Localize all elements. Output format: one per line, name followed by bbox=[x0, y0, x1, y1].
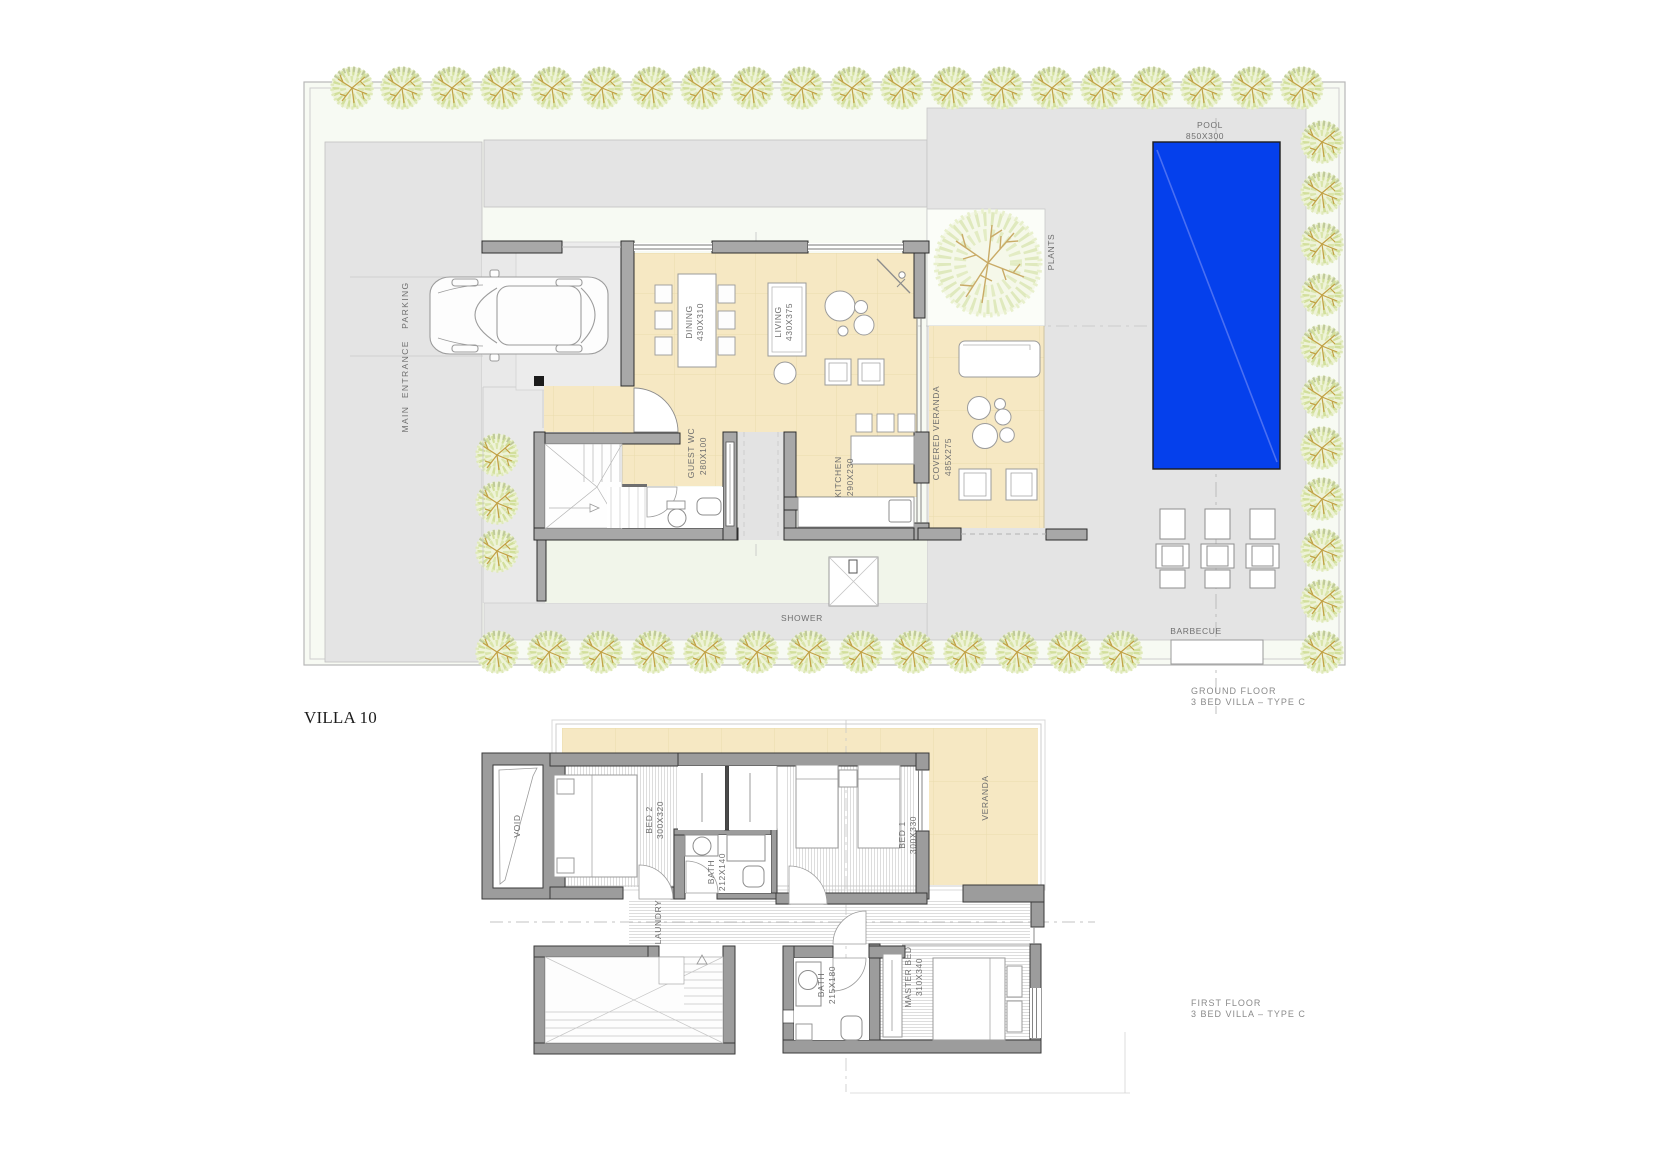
svg-text:GUEST WC: GUEST WC bbox=[686, 428, 696, 478]
svg-text:212X140: 212X140 bbox=[717, 853, 727, 891]
svg-text:430X375: 430X375 bbox=[784, 303, 794, 341]
svg-text:LAUNDRY: LAUNDRY bbox=[653, 900, 663, 945]
svg-text:PLANTS: PLANTS bbox=[1046, 234, 1056, 271]
svg-text:VERANDA: VERANDA bbox=[980, 775, 990, 820]
svg-text:VILLA 10: VILLA 10 bbox=[304, 708, 377, 727]
svg-text:MASTER BED: MASTER BED bbox=[903, 946, 913, 1007]
svg-text:KITCHEN: KITCHEN bbox=[833, 456, 843, 498]
svg-text:COVERED VERANDA: COVERED VERANDA bbox=[931, 386, 941, 481]
svg-text:485X275: 485X275 bbox=[943, 438, 953, 476]
svg-text:GROUND FLOOR: GROUND FLOOR bbox=[1191, 686, 1277, 696]
svg-text:MAIN ENTRANCE PARKING: MAIN ENTRANCE PARKING bbox=[400, 281, 410, 432]
svg-text:VOID: VOID bbox=[512, 814, 522, 837]
svg-text:SHOWER: SHOWER bbox=[781, 613, 823, 623]
svg-text:BED 1: BED 1 bbox=[897, 821, 907, 849]
svg-text:BARBECUE: BARBECUE bbox=[1170, 626, 1222, 636]
svg-text:3 BED VILLA – TYPE C: 3 BED VILLA – TYPE C bbox=[1191, 1009, 1306, 1019]
svg-text:280X100: 280X100 bbox=[698, 437, 708, 475]
svg-text:BATH: BATH bbox=[706, 860, 716, 884]
svg-text:BED 2: BED 2 bbox=[644, 806, 654, 834]
svg-text:DINING: DINING bbox=[684, 305, 694, 338]
svg-text:215X180: 215X180 bbox=[827, 966, 837, 1004]
svg-text:FIRST FLOOR: FIRST FLOOR bbox=[1191, 998, 1261, 1008]
svg-text:290X230: 290X230 bbox=[845, 458, 855, 496]
svg-text:850X300: 850X300 bbox=[1186, 131, 1224, 141]
svg-text:3 BED VILLA – TYPE C: 3 BED VILLA – TYPE C bbox=[1191, 697, 1306, 707]
svg-text:310X340: 310X340 bbox=[914, 958, 924, 996]
svg-text:300X320: 300X320 bbox=[655, 801, 665, 839]
svg-text:BATH: BATH bbox=[816, 973, 826, 997]
svg-text:430X310: 430X310 bbox=[695, 303, 705, 341]
svg-text:LIVING: LIVING bbox=[773, 306, 783, 337]
svg-text:300X330: 300X330 bbox=[908, 816, 918, 854]
svg-text:POOL: POOL bbox=[1197, 120, 1223, 130]
